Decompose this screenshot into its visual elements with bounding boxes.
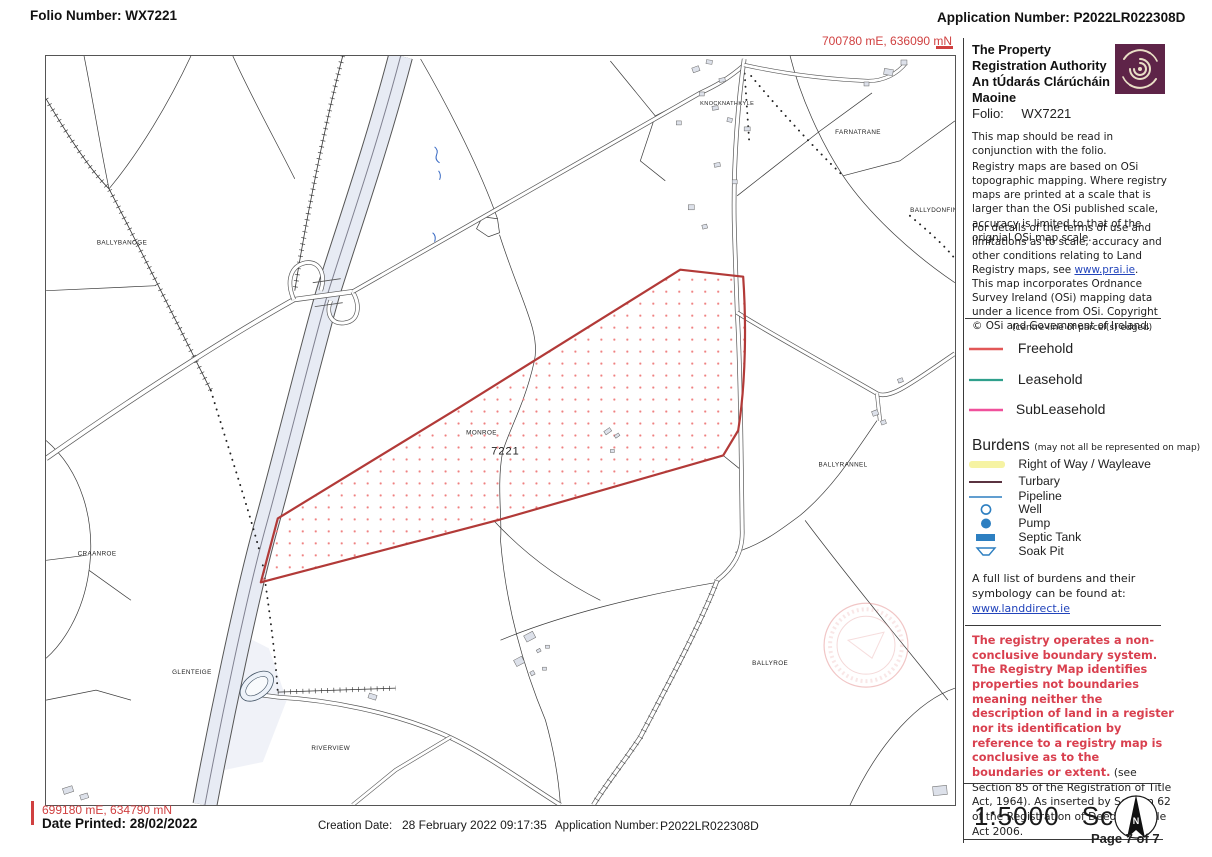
compass-n-label: N [1133,816,1140,826]
burden-row-septic-tank: Septic Tank [968,530,1081,544]
subleasehold-line-icon [968,406,1004,414]
red-corner-tick-bottom-left [31,801,34,825]
septic-tank-rect-icon [968,532,1006,543]
pra-logo [1115,44,1165,94]
burden-label: Septic Tank [1018,530,1081,544]
label-ballydonfin: BALLYDONFIN [910,207,955,214]
creation-date-value: 28 February 2022 09:17:35 [402,818,547,832]
footer-application-value: P2022LR022308D [660,819,759,833]
land-registry-map-page: Folio Number: WX7221 Application Number:… [0,0,1212,857]
folio-value: WX7221 [1021,106,1071,121]
leasehold-line-icon [968,376,1004,384]
map-corner-coordinate-top-right: 700780 mE, 636090 mN [822,34,952,48]
date-printed: Date Printed: 28/02/2022 [42,816,197,831]
legend-row-freehold: Freehold [968,340,1073,356]
label-craanroe: CRAANROE [78,550,117,557]
legend-label: Leasehold [1018,371,1083,387]
legend-label: SubLeasehold [1016,401,1106,417]
legend-row-subleasehold: SubLeasehold [968,401,1105,417]
folio-number-header: Folio Number: WX7221 [30,8,177,23]
label-knocknathkyle: KNOCKNATHKYLE [700,101,754,107]
note-conjunction: This map should be read in conjunction w… [972,130,1170,158]
label-ballyroe: BALLYROE [752,660,788,667]
burden-list-note: A full list of burdens and their symbolo… [972,572,1172,617]
burden-label: Pipeline [1018,489,1061,503]
label-riverview: RIVERVIEW [311,745,350,752]
prai-link[interactable]: www.prai.ie [1074,264,1135,276]
application-number-header: Application Number: P2022LR022308D [937,10,1185,25]
burden-label: Right of Way / Wayleave [1018,457,1151,471]
burdens-note: (may not all be represented on map) [1034,443,1200,453]
cadastral-map: BALLYBANOGE KNOCKNATHKYLE FARNATRANE BAL… [46,56,955,805]
folio-row: Folio: WX7221 [972,106,1071,121]
burden-label: Turbary [1018,474,1060,488]
soak-pit-trapezoid-icon [968,546,1006,557]
burden-row-turbary: Turbary [968,474,1060,488]
page-number: Page 7 of 7 [1091,831,1160,846]
right-of-way-band-icon [968,460,1006,470]
divider-warning [965,625,1161,626]
label-monroe: MONROE [466,429,497,436]
burden-row-pump: Pump [968,516,1050,530]
legend-note: (centre-line of parcel(s) edged) [1012,323,1152,333]
legend-row-leasehold: Leasehold [968,371,1083,387]
authority-name-english: The Property Registration Authority [972,42,1114,73]
hatched-boundaries [46,56,396,692]
pipeline-line-icon [968,493,1006,501]
well-circle-icon [968,503,1006,516]
footer-application-label: Application Number: [555,820,659,832]
label-farnatrane: FARNATRANE [835,129,881,136]
sidebar-divider [963,38,964,843]
divider-legend [965,318,1161,319]
map-corner-coordinate-bottom-left: 699180 mE, 634790 mN [42,803,172,817]
turbary-line-icon [968,478,1006,486]
burden-row-soak-pit: Soak Pit [968,544,1064,558]
creation-date-label: Creation Date: [318,820,392,832]
warning-red-text: The registry operates a non-conclusive b… [972,634,1174,779]
stream-marks [433,147,441,242]
label-ballyrannel: BALLYRANNEL [819,461,868,468]
divider-scale [963,783,1161,784]
red-corner-tick-top-right [936,46,953,49]
parcel-number-label: 7221 [491,445,519,457]
burden-label: Soak Pit [1018,544,1063,558]
landdirect-link[interactable]: www.landdirect.ie [972,602,1070,615]
cadastral-map-frame: BALLYBANOGE KNOCKNATHKYLE FARNATRANE BAL… [45,55,956,806]
burden-label: Well [1018,502,1041,516]
burden-row-right-of-way: Right of Way / Wayleave [968,457,1151,471]
authority-name-irish: An tÚdarás Clárúcháin Maoine [972,74,1114,105]
folio-label: Folio: [972,106,1004,121]
label-glenteige: GLENTEIGE [172,669,212,676]
burdens-title-row: Burdens (may not all be represented on m… [972,437,1200,455]
para-terms-period: . [1135,264,1138,276]
burden-list-text: A full list of burdens and their symbolo… [972,572,1135,600]
legend-label: Freehold [1018,340,1073,356]
para-terms: For details of the terms of use and limi… [972,221,1170,278]
certification-stamp [824,603,908,687]
freehold-line-icon [968,345,1004,353]
label-ballybanoge: BALLYBANOGE [97,240,147,247]
burden-row-well: Well [968,502,1042,516]
burden-label: Pump [1018,516,1050,530]
scale-value: 1:5000 [974,801,1060,831]
burden-row-pipeline: Pipeline [968,489,1062,503]
burdens-title: Burdens [972,437,1030,454]
pump-dot-icon [968,517,1006,530]
